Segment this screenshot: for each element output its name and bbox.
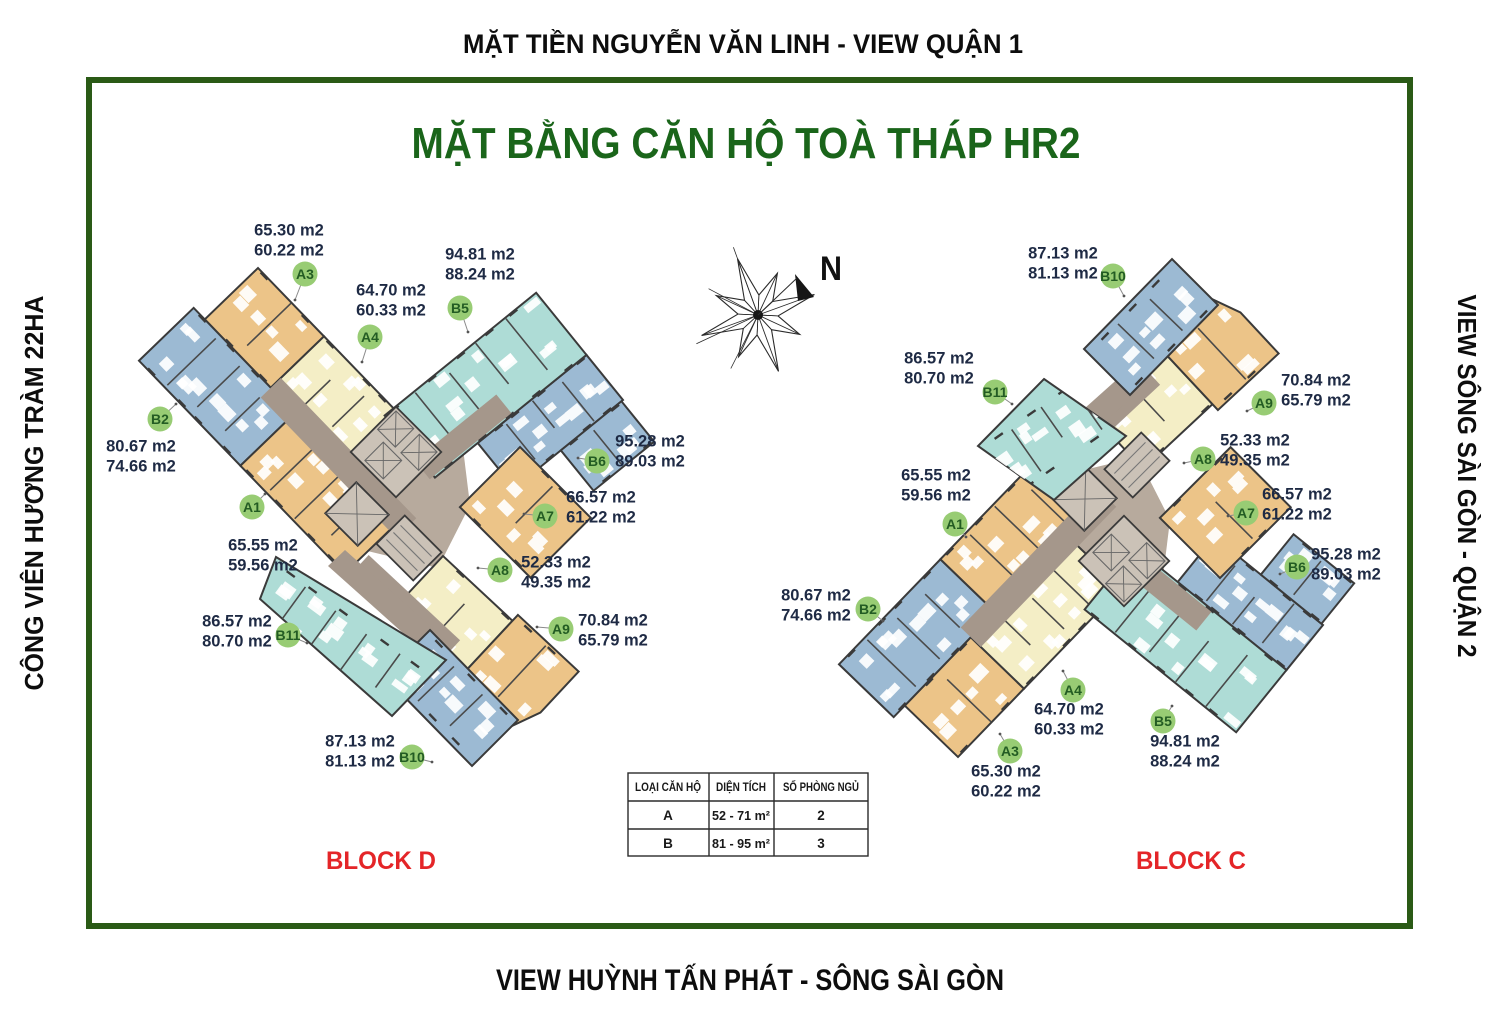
svg-text:80.67 m2: 80.67 m2: [781, 587, 851, 605]
svg-text:65.30 m2: 65.30 m2: [971, 763, 1041, 781]
svg-text:65.79 m2: 65.79 m2: [1281, 392, 1351, 410]
svg-text:87.13 m2: 87.13 m2: [325, 733, 395, 751]
svg-text:49.35 m2: 49.35 m2: [521, 574, 591, 592]
svg-text:60.22 m2: 60.22 m2: [971, 783, 1041, 801]
svg-text:94.81 m2: 94.81 m2: [1150, 733, 1220, 751]
svg-text:3: 3: [817, 836, 825, 851]
svg-text:89.03 m2: 89.03 m2: [1311, 566, 1381, 584]
svg-text:A3: A3: [1001, 743, 1019, 759]
svg-text:52.33 m2: 52.33 m2: [521, 554, 591, 572]
svg-text:74.66 m2: 74.66 m2: [781, 607, 851, 625]
svg-text:70.84 m2: 70.84 m2: [578, 612, 648, 630]
svg-text:CÔNG VIÊN HƯƠNG TRÀM 22HA: CÔNG VIÊN HƯƠNG TRÀM 22HA: [19, 295, 49, 690]
svg-text:MẶT BẰNG CĂN HỘ TOÀ THÁP HR2: MẶT BẰNG CĂN HỘ TOÀ THÁP HR2: [412, 117, 1081, 168]
svg-text:A4: A4: [1064, 682, 1082, 698]
svg-text:DIỆN TÍCH: DIỆN TÍCH: [716, 779, 766, 794]
svg-text:61.22 m2: 61.22 m2: [1262, 506, 1332, 524]
svg-text:80.67 m2: 80.67 m2: [106, 438, 176, 456]
svg-text:81.13 m2: 81.13 m2: [1028, 265, 1098, 283]
svg-text:VIEW SÔNG SÀI GÒN - QUẬN 2: VIEW SÔNG SÀI GÒN - QUẬN 2: [1452, 295, 1482, 658]
svg-text:61.22 m2: 61.22 m2: [566, 509, 636, 527]
svg-text:A1: A1: [946, 516, 964, 532]
svg-text:SỐ PHÒNG NGỦ: SỐ PHÒNG NGỦ: [783, 779, 859, 794]
svg-text:60.33 m2: 60.33 m2: [356, 302, 426, 320]
svg-text:B5: B5: [1154, 713, 1172, 729]
svg-text:A8: A8: [491, 562, 509, 578]
svg-text:65.30 m2: 65.30 m2: [254, 222, 324, 240]
svg-text:2: 2: [817, 808, 825, 823]
svg-text:87.13 m2: 87.13 m2: [1028, 245, 1098, 263]
svg-text:VIEW HUỲNH TẤN PHÁT - SÔNG SÀI: VIEW HUỲNH TẤN PHÁT - SÔNG SÀI GÒN: [496, 963, 1004, 997]
svg-text:59.56 m2: 59.56 m2: [901, 487, 971, 505]
svg-text:A4: A4: [361, 329, 379, 345]
svg-text:A3: A3: [296, 266, 314, 282]
svg-text:A: A: [663, 808, 673, 823]
svg-text:60.33 m2: 60.33 m2: [1034, 721, 1104, 739]
svg-text:A7: A7: [536, 508, 554, 524]
svg-text:95.28 m2: 95.28 m2: [615, 433, 685, 451]
svg-text:95.28 m2: 95.28 m2: [1311, 546, 1381, 564]
svg-text:B2: B2: [151, 411, 169, 427]
svg-text:65.55 m2: 65.55 m2: [228, 537, 298, 555]
svg-text:60.22 m2: 60.22 m2: [254, 242, 324, 260]
svg-text:A9: A9: [1255, 395, 1273, 411]
svg-text:B5: B5: [451, 300, 469, 316]
svg-text:59.56 m2: 59.56 m2: [228, 557, 298, 575]
svg-text:80.70 m2: 80.70 m2: [904, 370, 974, 388]
svg-text:B11: B11: [983, 384, 1008, 400]
svg-text:B6: B6: [1288, 559, 1306, 575]
svg-text:89.03 m2: 89.03 m2: [615, 453, 685, 471]
svg-text:74.66 m2: 74.66 m2: [106, 458, 176, 476]
svg-text:86.57 m2: 86.57 m2: [904, 350, 974, 368]
svg-text:66.57 m2: 66.57 m2: [1262, 486, 1332, 504]
svg-text:81 - 95 m²: 81 - 95 m²: [712, 837, 770, 851]
svg-text:LOẠI CĂN HỘ: LOẠI CĂN HỘ: [635, 779, 701, 794]
svg-text:B10: B10: [1100, 268, 1126, 284]
svg-text:A7: A7: [1237, 505, 1255, 521]
svg-text:80.70 m2: 80.70 m2: [202, 633, 272, 651]
svg-text:81.13 m2: 81.13 m2: [325, 753, 395, 771]
svg-text:MẶT TIỀN NGUYỄN VĂN LINH - VIE: MẶT TIỀN NGUYỄN VĂN LINH - VIEW QUẬN 1: [463, 28, 1023, 59]
svg-text:66.57 m2: 66.57 m2: [566, 489, 636, 507]
svg-text:B10: B10: [399, 749, 425, 765]
svg-text:A8: A8: [1194, 451, 1212, 467]
svg-text:88.24 m2: 88.24 m2: [1150, 753, 1220, 771]
svg-text:65.79 m2: 65.79 m2: [578, 632, 648, 650]
svg-text:B11: B11: [276, 627, 301, 643]
svg-text:52.33 m2: 52.33 m2: [1220, 432, 1290, 450]
svg-text:65.55 m2: 65.55 m2: [901, 467, 971, 485]
svg-text:70.84 m2: 70.84 m2: [1281, 372, 1351, 390]
svg-text:64.70 m2: 64.70 m2: [356, 282, 426, 300]
svg-text:BLOCK D: BLOCK D: [326, 847, 436, 875]
svg-text:N: N: [820, 250, 842, 288]
svg-text:86.57 m2: 86.57 m2: [202, 613, 272, 631]
svg-text:94.81 m2: 94.81 m2: [445, 246, 515, 264]
svg-text:64.70 m2: 64.70 m2: [1034, 701, 1104, 719]
svg-text:B6: B6: [588, 453, 606, 469]
svg-text:A9: A9: [552, 621, 570, 637]
svg-text:B: B: [663, 836, 673, 851]
svg-text:A1: A1: [243, 499, 261, 515]
svg-text:BLOCK C: BLOCK C: [1136, 847, 1246, 875]
svg-text:49.35 m2: 49.35 m2: [1220, 452, 1290, 470]
svg-text:52 - 71 m²: 52 - 71 m²: [712, 809, 770, 823]
svg-text:88.24 m2: 88.24 m2: [445, 266, 515, 284]
svg-text:B2: B2: [859, 601, 877, 617]
